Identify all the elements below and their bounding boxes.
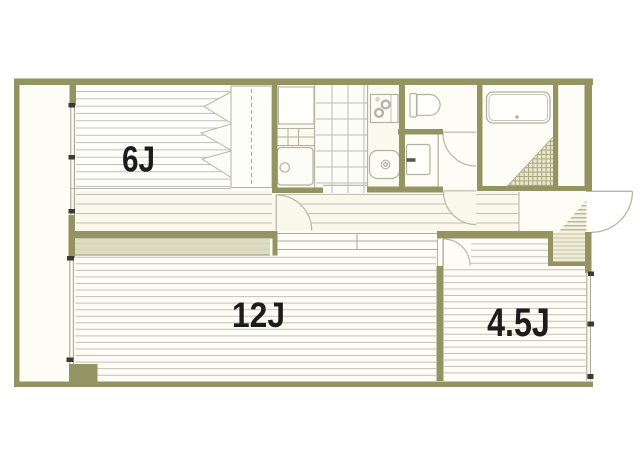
svg-text:12J: 12J xyxy=(232,296,285,335)
svg-text:4.5J: 4.5J xyxy=(487,301,550,345)
svg-text:6J: 6J xyxy=(122,139,155,180)
